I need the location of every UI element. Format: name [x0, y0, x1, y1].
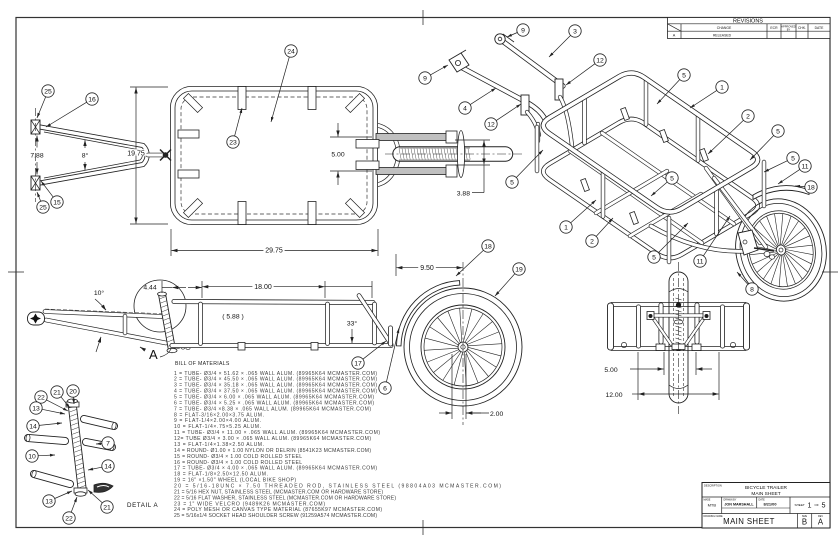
svg-text:8: 8: [750, 286, 754, 293]
svg-text:17: 17: [354, 360, 362, 367]
svg-text:ECR: ECR: [770, 26, 778, 30]
svg-text:11: 11: [801, 163, 808, 170]
svg-text:MAIN SHEET: MAIN SHEET: [723, 517, 775, 526]
svg-text:DETAIL A: DETAIL A: [127, 502, 159, 509]
svg-text:12: 12: [487, 121, 495, 128]
svg-text:18.00: 18.00: [254, 284, 272, 291]
svg-text:CHANGE: CHANGE: [717, 26, 732, 30]
svg-text:21: 21: [53, 389, 61, 396]
svg-text:22: 22: [65, 515, 73, 522]
svg-text:A: A: [149, 347, 158, 362]
svg-text:RELEASED: RELEASED: [713, 33, 732, 37]
svg-text:A: A: [818, 518, 824, 527]
svg-text:14: 14: [29, 423, 37, 430]
svg-text:CHK.: CHK.: [798, 26, 806, 30]
svg-text:5.00: 5.00: [604, 367, 617, 374]
svg-text:SHEET: SHEET: [795, 503, 805, 507]
svg-text:DRAWN BY: DRAWN BY: [724, 499, 737, 502]
svg-text:DESCRIPTION: DESCRIPTION: [704, 483, 722, 487]
svg-text:JON MARSHALL: JON MARSHALL: [724, 503, 754, 507]
svg-text:10: 10: [28, 453, 36, 460]
svg-text:16: 16: [88, 96, 96, 103]
svg-text:1: 1: [564, 224, 568, 231]
svg-text:1: 1: [808, 501, 812, 510]
svg-text:18: 18: [484, 243, 492, 250]
svg-text:B: B: [802, 518, 807, 527]
svg-text:( 5.88 ): ( 5.88 ): [222, 314, 244, 321]
svg-text:5: 5: [682, 72, 686, 79]
svg-text:8/21/00: 8/21/00: [764, 502, 777, 507]
svg-text:5: 5: [510, 179, 514, 186]
svg-text:19: 19: [515, 266, 523, 273]
svg-text:MTB: MTB: [708, 503, 717, 508]
svg-text:2: 2: [590, 238, 594, 245]
svg-text:5: 5: [776, 128, 780, 135]
svg-text:BY: BY: [787, 27, 791, 31]
svg-text:5: 5: [670, 175, 674, 182]
svg-text:23: 23: [229, 139, 237, 146]
svg-text:1: 1: [720, 84, 724, 91]
svg-text:21: 21: [103, 504, 111, 511]
svg-text:MADE: MADE: [704, 499, 711, 502]
svg-text:DATE: DATE: [815, 26, 825, 30]
svg-text:25: 25: [44, 88, 52, 95]
svg-text:9.50: 9.50: [420, 265, 434, 272]
svg-text:5: 5: [822, 501, 826, 510]
svg-text:MAIN SHEET: MAIN SHEET: [751, 491, 780, 497]
svg-text:22: 22: [37, 394, 45, 401]
svg-text:13: 13: [45, 498, 53, 505]
svg-text:REVISIONS: REVISIONS: [733, 18, 763, 24]
svg-text:9: 9: [521, 27, 525, 34]
svg-text:14: 14: [104, 463, 112, 470]
svg-text:18: 18: [807, 184, 815, 191]
svg-text:19.75: 19.75: [127, 151, 145, 158]
svg-text:3: 3: [573, 28, 577, 35]
svg-text:7: 7: [106, 440, 110, 447]
svg-text:7.88: 7.88: [30, 152, 43, 159]
svg-text:33°: 33°: [347, 320, 358, 328]
svg-text:DRAWING NAME: DRAWING NAME: [704, 515, 723, 518]
svg-text:BILL OF MATERIALS: BILL OF MATERIALS: [175, 361, 230, 367]
svg-text:4.44: 4.44: [143, 285, 156, 292]
svg-text:3.88: 3.88: [457, 191, 470, 198]
svg-text:25 = 5/16x1/4 SOCKET HEAD SHOU: 25 = 5/16x1/4 SOCKET HEAD SHOULDER SCREW…: [174, 513, 377, 519]
svg-text:20: 20: [69, 388, 77, 395]
svg-text:29.75: 29.75: [265, 248, 283, 255]
svg-text:5: 5: [652, 254, 656, 261]
svg-text:9: 9: [423, 75, 427, 82]
svg-text:25: 25: [39, 204, 47, 211]
svg-text:12: 12: [596, 57, 604, 64]
svg-text:13: 13: [32, 405, 40, 412]
svg-text:15: 15: [53, 199, 61, 206]
svg-text:11: 11: [696, 258, 703, 265]
svg-text:A: A: [673, 34, 676, 38]
svg-text:2: 2: [746, 113, 750, 120]
svg-text:24: 24: [287, 48, 295, 55]
svg-text:2.00: 2.00: [490, 411, 503, 418]
svg-text:OF: OF: [815, 503, 819, 507]
svg-text:6: 6: [383, 385, 387, 392]
svg-text:5: 5: [791, 155, 795, 162]
svg-text:8°: 8°: [82, 152, 89, 160]
svg-text:5.00: 5.00: [331, 152, 344, 159]
svg-text:10°: 10°: [94, 289, 105, 297]
svg-text:BICYCLE TRAILER: BICYCLE TRAILER: [745, 485, 788, 491]
svg-text:12.00: 12.00: [605, 392, 622, 399]
svg-text:4: 4: [463, 105, 467, 112]
